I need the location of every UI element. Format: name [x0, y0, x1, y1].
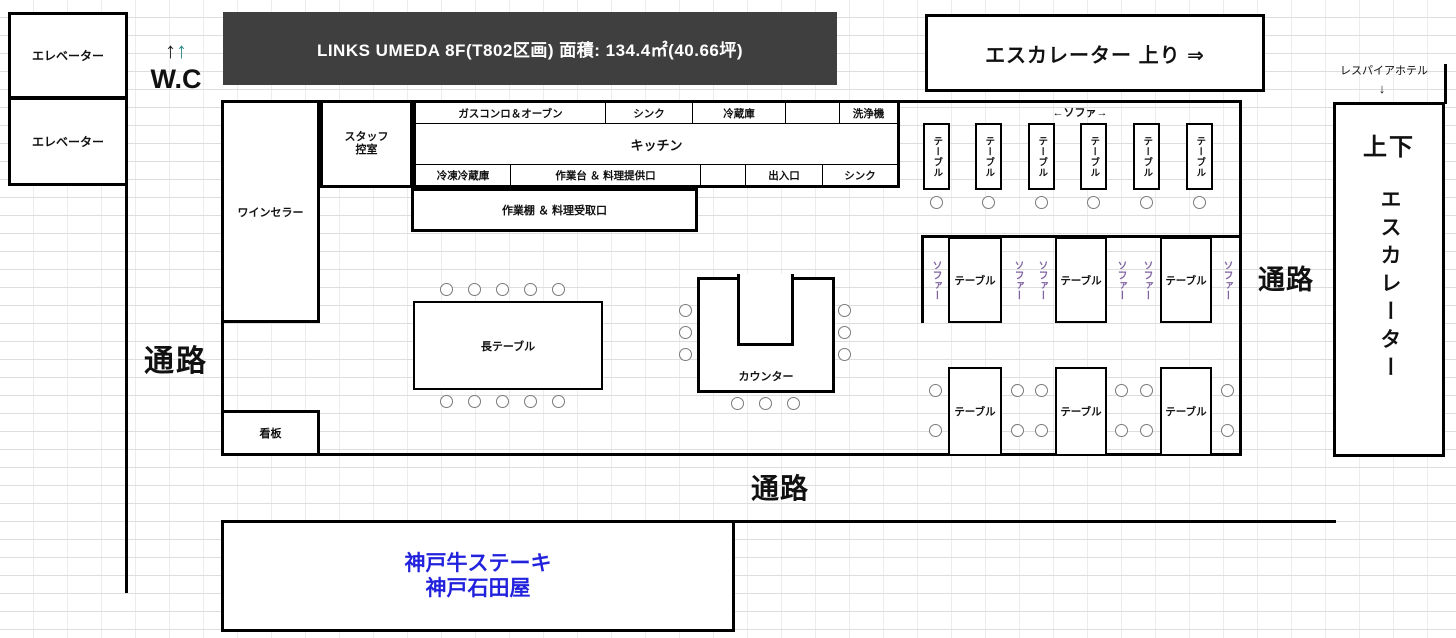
chair-circle — [1011, 384, 1024, 397]
kitchen-doorway: 出入口 — [746, 165, 823, 185]
chair-circle — [468, 395, 481, 408]
chair-circle — [731, 397, 744, 410]
sofa-strip: ソファー — [928, 242, 943, 318]
wall — [125, 184, 128, 593]
chair-circle — [524, 283, 537, 296]
chair-circle — [838, 348, 851, 361]
chair-circle — [468, 283, 481, 296]
chair-circle — [1193, 196, 1206, 209]
hotel-label: レスパイアホテル — [1332, 62, 1436, 78]
dining-table: テーブル — [1055, 367, 1107, 456]
wine-cellar-label: ワインセラー — [238, 204, 304, 220]
dining-table: テーブル — [1055, 237, 1107, 323]
kitchen-label: キッチン — [416, 124, 897, 164]
escalator-shaft: 上下 エスカレーター — [1333, 102, 1445, 457]
wall — [1444, 64, 1447, 104]
escalator-up-box: エスカレーター 上り ⇒ — [925, 14, 1265, 92]
elevator-1-label: エレベーター — [32, 47, 104, 64]
chair-circle — [1087, 196, 1100, 209]
chair-circle — [838, 304, 851, 317]
chair-circle — [552, 395, 565, 408]
kitchen-empty-cell — [786, 103, 840, 123]
dining-table: テーブル — [1160, 237, 1212, 323]
long-table: 長テーブル — [413, 301, 603, 390]
floor-plan: エレベーター エレベーター ↑↑ W.C LINKS UMEDA 8F(T802… — [0, 0, 1456, 638]
corridor-label-left: 通路 — [134, 336, 218, 380]
sofa-range-label: ←ソファ→ — [1000, 104, 1160, 120]
elevator-2-label: エレベーター — [32, 133, 104, 150]
chair-circle — [1221, 384, 1234, 397]
escalator-vertical-label: エスカレーター — [1374, 188, 1404, 384]
chair-circle — [1035, 384, 1048, 397]
kitchen-empty-cell — [701, 165, 746, 185]
kitchen-gas-oven: ガスコンロ＆オーブン — [416, 103, 606, 123]
updown-label: 上下 — [1363, 127, 1415, 162]
chair-circle — [440, 283, 453, 296]
table-stall: テーブル — [1133, 123, 1160, 190]
chair-circle — [440, 395, 453, 408]
chair-circle — [679, 326, 692, 339]
table-stall: テーブル — [975, 123, 1002, 190]
tenant-box: 神戸牛ステーキ 神戸石田屋 — [221, 520, 735, 632]
up-arrow-icon: ↑ — [165, 38, 176, 64]
elevator-1-room: エレベーター — [8, 12, 128, 99]
sofa-strip: ソファー — [1113, 242, 1128, 318]
wine-cellar-room: ワインセラー — [221, 100, 320, 323]
kitchen-sink-2: シンク — [823, 165, 897, 185]
wall-right — [1239, 100, 1242, 456]
chair-circle — [930, 196, 943, 209]
chair-circle — [787, 397, 800, 410]
chair-circle — [496, 395, 509, 408]
wall — [735, 520, 1336, 523]
title-bar: LINKS UMEDA 8F(T802区画) 面積: 134.4㎡(40.66坪… — [223, 12, 837, 85]
staff-room: スタッフ 控室 — [320, 100, 413, 188]
table-stall: テーブル — [923, 123, 950, 190]
kitchen-sink: シンク — [606, 103, 693, 123]
table-stall: テーブル — [1080, 123, 1107, 190]
chair-circle — [929, 424, 942, 437]
dining-table: テーブル — [1160, 367, 1212, 456]
kitchen-freezer: 冷凍冷蔵庫 — [416, 165, 511, 185]
sofa-strip: ソファー — [1139, 242, 1154, 318]
corridor-label-right: 通路 — [1248, 256, 1324, 298]
wc-label: W.C — [136, 62, 216, 96]
chair-circle — [759, 397, 772, 410]
sofa-strip: ソファー — [1219, 242, 1234, 318]
wall — [921, 235, 924, 323]
chair-circle — [1140, 384, 1153, 397]
table-stall: テーブル — [1028, 123, 1055, 190]
kitchen-block: ガスコンロ＆オーブン シンク 冷蔵庫 洗浄機 キッチン 冷凍冷蔵庫 作業台 ＆ … — [413, 100, 900, 188]
table-stall: テーブル — [1186, 123, 1213, 190]
up-arrow-icon: ↑ — [176, 38, 187, 64]
chair-circle — [1115, 424, 1128, 437]
chair-circle — [838, 326, 851, 339]
dining-table: テーブル — [948, 237, 1002, 323]
chair-circle — [929, 384, 942, 397]
chair-circle — [1140, 196, 1153, 209]
chair-circle — [1011, 424, 1024, 437]
counter-notch — [737, 274, 794, 346]
kitchen-fridge: 冷蔵庫 — [693, 103, 786, 123]
signboard: 看板 — [221, 410, 320, 456]
kitchen-dishwasher: 洗浄機 — [840, 103, 897, 123]
chair-circle — [1140, 424, 1153, 437]
chair-circle — [1115, 384, 1128, 397]
chair-circle — [982, 196, 995, 209]
dining-table: テーブル — [948, 367, 1002, 456]
plan-title: LINKS UMEDA 8F(T802区画) 面積: 134.4㎡(40.66坪… — [317, 36, 743, 61]
chair-circle — [1221, 424, 1234, 437]
chair-circle — [1035, 196, 1048, 209]
elevator-2-room: エレベーター — [8, 97, 128, 186]
chair-circle — [496, 283, 509, 296]
chair-circle — [679, 304, 692, 317]
chair-circle — [524, 395, 537, 408]
chair-circle — [1035, 424, 1048, 437]
work-shelf-pickup: 作業棚 ＆ 料理受取口 — [411, 188, 698, 232]
sofa-strip: ソファー — [1034, 242, 1049, 318]
hotel-down-arrow-icon: ↓ — [1368, 78, 1396, 98]
sofa-strip: ソファー — [1010, 242, 1025, 318]
kitchen-worktable-serving: 作業台 ＆ 料理提供口 — [511, 165, 701, 185]
corridor-label-bottom: 通路 — [738, 466, 822, 508]
chair-circle — [679, 348, 692, 361]
chair-circle — [552, 283, 565, 296]
